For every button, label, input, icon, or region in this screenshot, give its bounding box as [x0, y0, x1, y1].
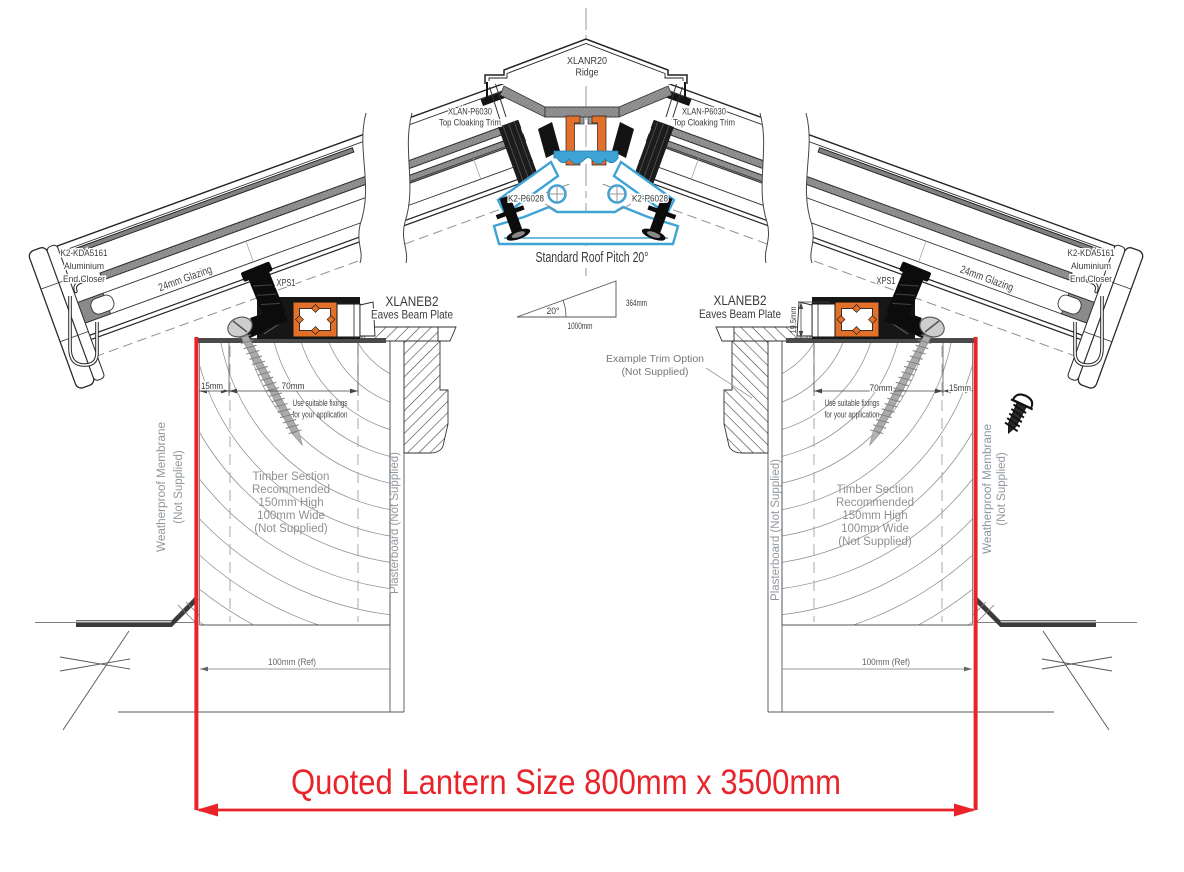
svg-text:K2-KDA5161: K2-KDA5161	[1068, 248, 1115, 259]
svg-text:Standard Roof Pitch 20°: Standard Roof Pitch 20°	[536, 249, 649, 266]
svg-text:K2-P6028: K2-P6028	[632, 194, 668, 205]
svg-text:Aluminium: Aluminium	[1071, 261, 1111, 272]
svg-text:15mm: 15mm	[201, 381, 223, 392]
svg-text:(Not Supplied): (Not Supplied)	[254, 523, 328, 535]
svg-text:(Not Supplied): (Not Supplied)	[996, 452, 1008, 526]
svg-text:Top Cloaking Trim: Top Cloaking Trim	[673, 118, 735, 129]
svg-text:150mm High: 150mm High	[842, 510, 907, 522]
svg-text:Weatherproof Membrane: Weatherproof Membrane	[156, 422, 168, 552]
svg-text:for your application: for your application	[825, 410, 880, 420]
svg-text:Plasterboard (Not Supplied): Plasterboard (Not Supplied)	[389, 452, 401, 594]
svg-text:Eaves Beam Plate: Eaves Beam Plate	[371, 308, 453, 322]
svg-text:1000mm: 1000mm	[568, 321, 593, 331]
svg-text:End Closer: End Closer	[1070, 274, 1112, 285]
svg-text:XLANEB2: XLANEB2	[714, 293, 767, 308]
svg-text:K2-P6028: K2-P6028	[508, 194, 544, 205]
svg-text:Plasterboard (Not Supplied): Plasterboard (Not Supplied)	[770, 459, 782, 601]
svg-text:(Not Supplied): (Not Supplied)	[838, 536, 912, 548]
svg-text:Use suitable fixings: Use suitable fixings	[825, 398, 880, 408]
svg-text:100mm Wide: 100mm Wide	[257, 510, 325, 522]
svg-text:Recommended: Recommended	[252, 484, 330, 496]
svg-text:Timber Section: Timber Section	[253, 471, 330, 483]
svg-text:End Closer: End Closer	[63, 274, 105, 285]
svg-text:(Not Supplied): (Not Supplied)	[173, 450, 185, 524]
svg-text:100mm Wide: 100mm Wide	[841, 523, 909, 535]
svg-text:XLAN-P6030: XLAN-P6030	[682, 107, 726, 118]
svg-text:Timber Section: Timber Section	[837, 484, 914, 496]
svg-text:Top Cloaking Trim: Top Cloaking Trim	[439, 118, 501, 129]
svg-text:19.5mm: 19.5mm	[788, 307, 798, 334]
svg-text:XPS1: XPS1	[877, 276, 896, 287]
svg-text:for your application: for your application	[293, 410, 348, 420]
svg-text:150mm High: 150mm High	[258, 497, 323, 509]
svg-text:Ridge: Ridge	[576, 68, 599, 79]
svg-text:Aluminium: Aluminium	[64, 261, 104, 272]
svg-text:(Not Supplied): (Not Supplied)	[621, 366, 688, 378]
svg-text:Weatherproof Membrane: Weatherproof Membrane	[982, 424, 994, 554]
svg-text:K2-KDA5161: K2-KDA5161	[61, 248, 108, 259]
svg-text:Example Trim Option: Example Trim Option	[606, 353, 704, 365]
svg-text:100mm (Ref): 100mm (Ref)	[268, 657, 316, 667]
svg-text:Quoted Lantern Size 800mm x 35: Quoted Lantern Size 800mm x 3500mm	[291, 763, 841, 802]
svg-text:Eaves Beam Plate: Eaves Beam Plate	[699, 307, 781, 321]
svg-text:20°: 20°	[547, 306, 560, 316]
svg-text:Recommended: Recommended	[836, 497, 914, 509]
svg-text:100mm (Ref): 100mm (Ref)	[862, 657, 910, 667]
svg-text:364mm: 364mm	[626, 298, 647, 308]
svg-text:XLANR20: XLANR20	[567, 56, 607, 67]
svg-text:Use suitable fixings: Use suitable fixings	[293, 398, 348, 408]
svg-text:70mm: 70mm	[870, 383, 893, 394]
svg-text:70mm: 70mm	[282, 381, 305, 392]
svg-text:XLAN-P6030: XLAN-P6030	[448, 107, 492, 118]
svg-text:XPS1: XPS1	[277, 278, 296, 289]
svg-text:15mm: 15mm	[949, 383, 971, 394]
